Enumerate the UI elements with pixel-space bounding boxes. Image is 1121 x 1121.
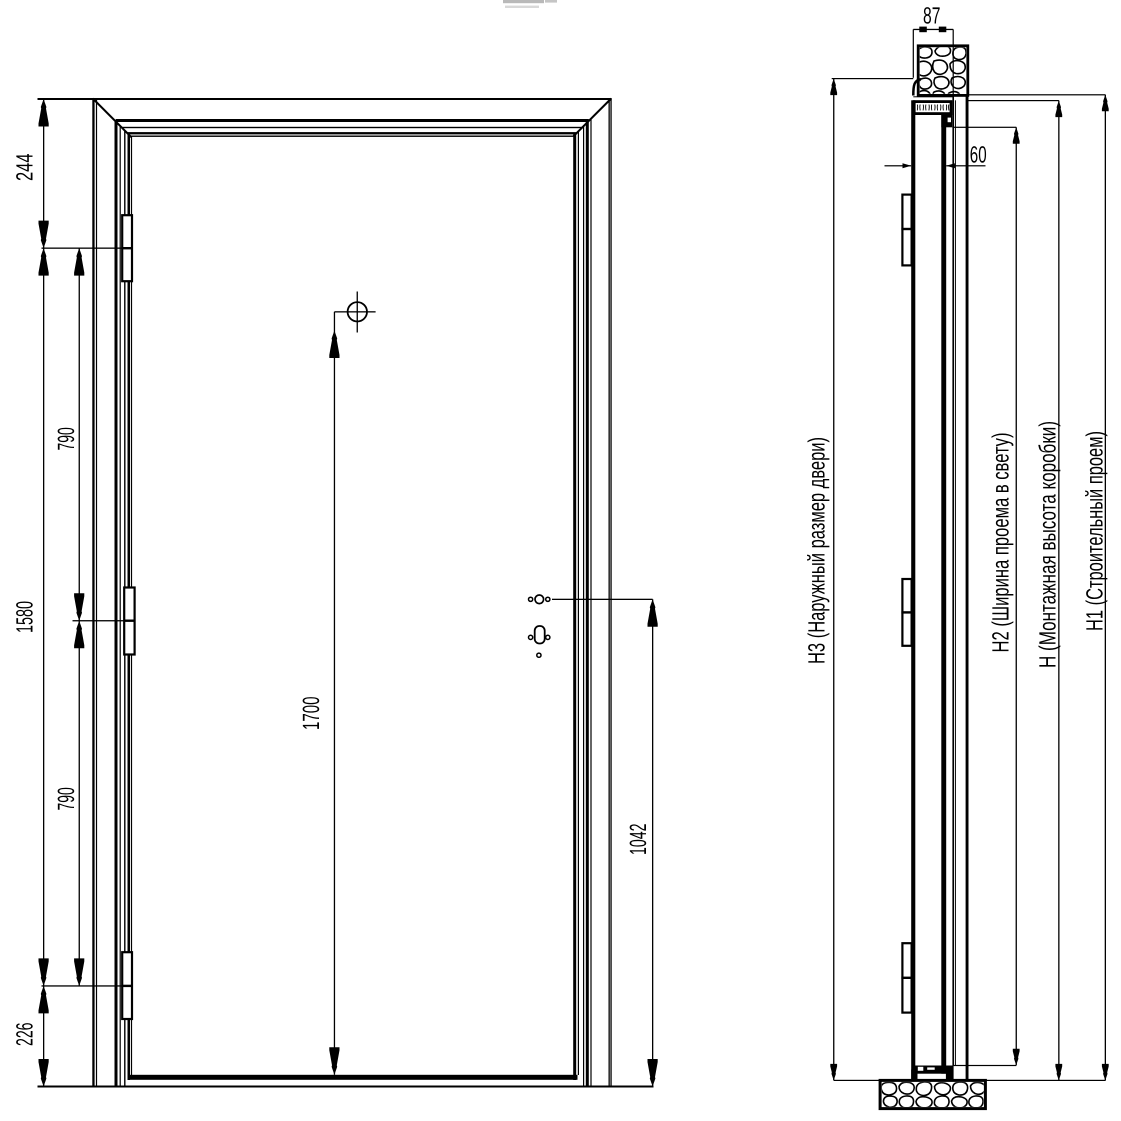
svg-text:Н3 (Наружный размер двери): Н3 (Наружный размер двери) — [804, 437, 830, 664]
svg-text:60: 60 — [970, 141, 987, 167]
svg-text:244: 244 — [12, 154, 38, 182]
svg-text:790: 790 — [53, 427, 79, 450]
svg-text:Н (Монтажная высота коробки): Н (Монтажная высота коробки) — [1035, 421, 1061, 668]
svg-text:226: 226 — [12, 1023, 38, 1047]
svg-text:Н2 (Ширина проема в свету): Н2 (Ширина проема в свету) — [988, 433, 1014, 653]
svg-text:87: 87 — [923, 2, 940, 28]
svg-text:Н1 (Строительный проем): Н1 (Строительный проем) — [1082, 431, 1108, 631]
svg-text:790: 790 — [53, 787, 79, 810]
svg-text:1580: 1580 — [12, 601, 38, 633]
svg-text:1042: 1042 — [625, 824, 651, 856]
svg-text:1700: 1700 — [298, 697, 324, 731]
